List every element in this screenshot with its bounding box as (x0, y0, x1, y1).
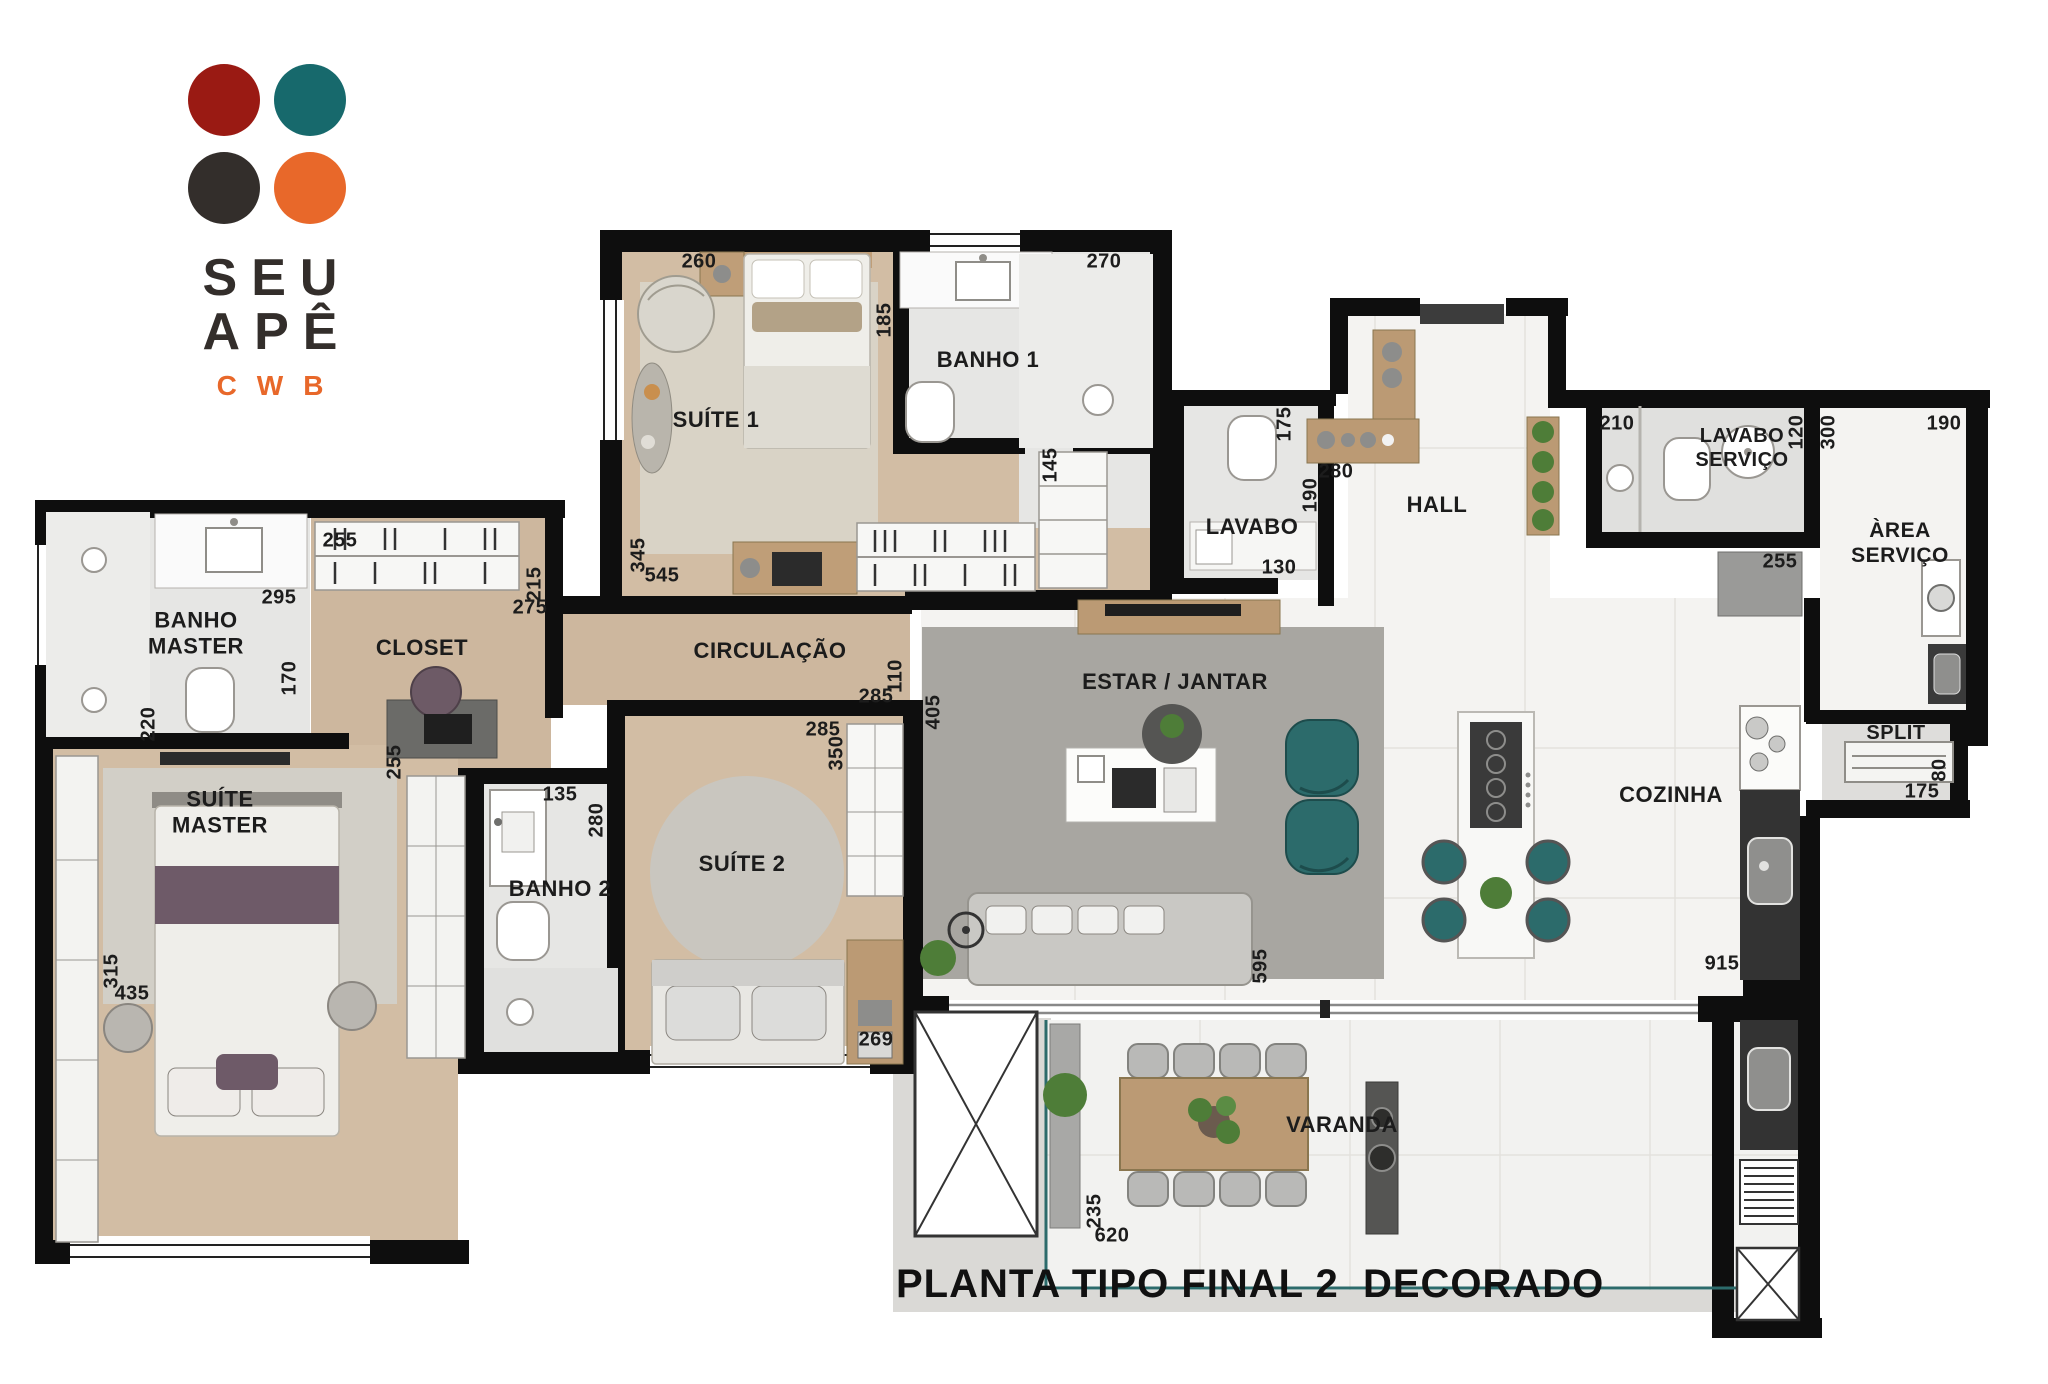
dim-estar-right: 595 (1250, 949, 1273, 984)
dim-varanda-bottom: 620 (1095, 1225, 1130, 1248)
room-label-suite-master: SUÍTE MASTER (172, 787, 268, 840)
dim-banho-master-left: 220 (138, 707, 161, 742)
dim-banho1-top: 270 (1087, 251, 1122, 274)
room-label-suite1: SUÍTE 1 (673, 407, 760, 433)
dim-suite1-bottom: 545 (645, 565, 680, 588)
logo-dot-teal (274, 64, 346, 136)
dim-suite2-right: 350 (826, 736, 849, 771)
room-label-circulacao: CIRCULAÇÃO (694, 638, 847, 664)
dim-wardrobe-side: 145 (1040, 448, 1063, 483)
room-label-hall: HALL (1407, 492, 1468, 518)
room-label-banho1: BANHO 1 (937, 347, 1040, 373)
sliding-door (949, 1000, 1698, 1018)
dim-closet-bottom: 255 (384, 745, 407, 780)
room-label-suite2: SUÍTE 2 (699, 851, 786, 877)
dim-banho2-right: 280 (586, 803, 609, 838)
logo-dot-dark (188, 152, 260, 224)
logo-text-cwb: CWB (160, 370, 380, 402)
logo-dot-red (188, 64, 260, 136)
dim-closet-right-h: 275 (513, 597, 548, 620)
dim-area-servico-top: 190 (1927, 413, 1962, 436)
room-label-lavabo-servico: LAVABO SERVIÇO (1695, 424, 1788, 472)
room-label-split: SPLIT (1866, 721, 1925, 745)
plan-title: PLANTA TIPO FINAL 2 DECORADO (896, 1262, 1604, 1307)
dim-lavabo-servico-right: 120 (1786, 415, 1809, 450)
room-label-closet: CLOSET (376, 635, 468, 661)
dim-varanda-left: 235 (1084, 1194, 1107, 1229)
room-label-varanda: VARANDA (1286, 1112, 1398, 1138)
dim-banho-master-width: 295 (262, 587, 297, 610)
dim-area-servico-cabinet: 255 (1763, 551, 1798, 574)
logo-text-ape: APÊ (160, 302, 380, 362)
room-label-cozinha: COZINHA (1619, 782, 1723, 808)
entrance-mat (1420, 304, 1504, 324)
dim-banho2-top: 135 (543, 784, 578, 807)
dim-lavabo-bottom: 130 (1262, 557, 1297, 580)
room-label-banho-master: BANHO MASTER (148, 608, 244, 661)
room-label-estar-jantar: ESTAR / JANTAR (1082, 669, 1268, 695)
room-label-banho2: BANHO 2 (509, 876, 612, 902)
dim-split-right: 80 (1929, 758, 1952, 781)
room-label-area-servico: ÀREA SERVIÇO (1851, 518, 1949, 568)
dim-lavabo-right: 175 (1274, 407, 1297, 442)
dim-split-bottom: 175 (1905, 781, 1940, 804)
floorplan-page: SEU APÊ CWB SUÍTE 1 BANHO 1 LAVABO HALL … (0, 0, 2048, 1384)
room-label-lavabo: LAVABO (1206, 514, 1299, 540)
dim-suite1-top: 260 (682, 251, 717, 274)
dim-circulacao-bottom: 285 (859, 686, 894, 709)
dim-hall-shelf: 280 (1319, 461, 1354, 484)
dim-banho1-left: 185 (874, 303, 897, 338)
dim-area-servico-left: 300 (1818, 415, 1841, 450)
dim-suite-master-bottom: 435 (115, 983, 150, 1006)
logo-dot-orange (274, 152, 346, 224)
logo-text-seu: SEU (160, 248, 380, 308)
dim-closet-top: 255 (323, 530, 358, 553)
dim-hall-left: 190 (1300, 478, 1323, 513)
dim-suite2-bottom: 269 (859, 1029, 894, 1052)
dim-lavabo-servico-top: 210 (1600, 413, 1635, 436)
dim-estar-left: 405 (923, 695, 946, 730)
dim-cozinha-bottom: 915 (1705, 953, 1740, 976)
dim-banho-master-door: 170 (279, 661, 302, 696)
